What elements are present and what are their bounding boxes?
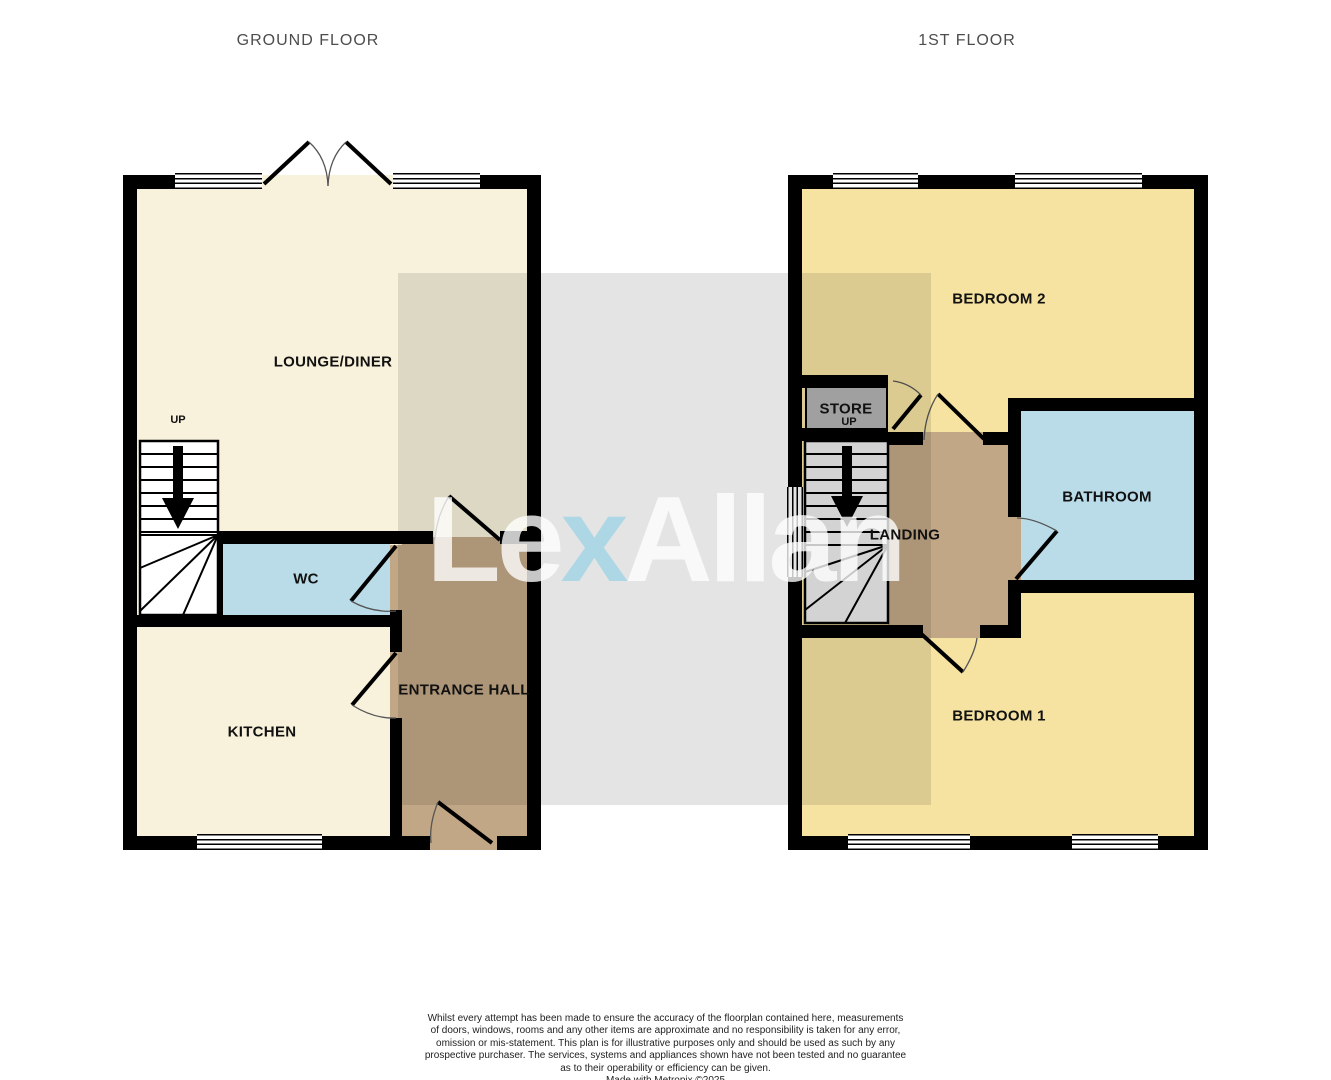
wc-label: WC: [293, 571, 319, 588]
gf-stairs-up-label: UP: [170, 414, 185, 426]
bedroom2-label: BEDROOM 2: [952, 291, 1046, 308]
ff-bedroom2-door: [924, 394, 984, 440]
gf-kitchen-door: [352, 653, 396, 718]
ground-floor-title: GROUND FLOOR: [237, 32, 380, 50]
gf-wc-door: [351, 546, 396, 611]
landing-label: LANDING: [870, 527, 940, 544]
kitchen-label: KITCHEN: [228, 724, 297, 741]
bathroom-label: BATHROOM: [1062, 489, 1152, 506]
disclaimer: Whilst every attempt has been made to en…: [0, 1013, 1331, 1080]
watermark-part2: x: [561, 471, 625, 607]
watermark-logo: LexAllan: [398, 478, 931, 600]
first-floor-title: 1ST FLOOR: [918, 32, 1016, 50]
gf-stairs: [140, 441, 218, 615]
watermark-part1: Le: [426, 471, 560, 607]
disclaimer-line: as to their operability or efficiency ca…: [0, 1063, 1331, 1075]
bedroom1-label: BEDROOM 1: [952, 708, 1046, 725]
disclaimer-credit: Made with Metropix ©2025: [0, 1075, 1331, 1080]
store-label: STORE: [820, 401, 873, 418]
disclaimer-line: Whilst every attempt has been made to en…: [0, 1013, 1331, 1025]
ff-bathroom-door: [1016, 518, 1057, 579]
watermark-part3: Allan: [624, 471, 902, 607]
disclaimer-line: of doors, windows, rooms and any other i…: [0, 1025, 1331, 1037]
store-up-label: UP: [841, 416, 856, 428]
floorplan-canvas: LexAllan GROUND FLOOR 1ST FLOOR LOUNGE/D…: [0, 0, 1331, 1080]
gf-french-doors: [264, 142, 391, 186]
entrance-hall-label: ENTRANCE HALL: [398, 682, 529, 699]
gf-front-door: [431, 802, 492, 843]
disclaimer-line: omission or mis-statement. This plan is …: [0, 1038, 1331, 1050]
disclaimer-line: prospective purchaser. The services, sys…: [0, 1050, 1331, 1062]
lounge-diner-label: LOUNGE/DINER: [274, 354, 393, 371]
